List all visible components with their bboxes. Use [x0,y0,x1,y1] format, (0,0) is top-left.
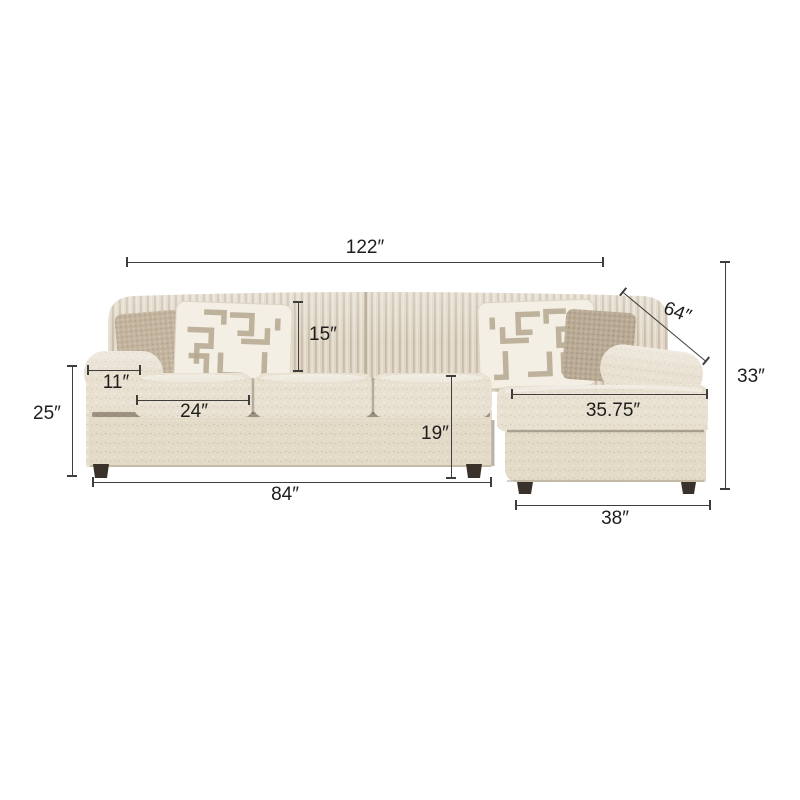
dimension-arm-width-line [87,370,141,371]
dimension-seat-height-line [451,375,452,479]
dimension-back-cushion-height-label: 15″ [309,325,337,346]
dimension-chaise-base-width-label: 38″ [601,509,629,530]
sofa-illustration [0,0,800,800]
dimension-sofa-section-width-label: 84″ [271,485,299,506]
dimension-arm-height-line [72,365,73,477]
dimension-chaise-base-width-line [515,505,711,506]
dimension-seat-cushion-width-label: 24″ [180,402,208,423]
dimension-overall-width-line [126,262,604,263]
dimension-overall-height-label: 33″ [737,367,765,388]
dimension-chaise-cushion-width-line [511,394,708,395]
dimension-chaise-cushion-width-label: 35.75″ [586,401,640,422]
dimension-back-cushion-height-line [298,301,299,372]
dimension-overall-width-label: 122″ [346,238,384,259]
dimension-arm-height-label: 25″ [33,404,61,425]
dimension-overall-height-line [725,261,726,490]
dimension-sofa-section-width-line [92,482,492,483]
chaise [497,384,708,482]
dimension-arm-width-label: 11″ [103,373,129,394]
product-dimension-diagram: 122″ 64″ 33″ 15″ 11″ 24″ 25″ 19″ 84″ 35.… [0,0,800,800]
dimension-seat-height-label: 19″ [421,424,449,445]
